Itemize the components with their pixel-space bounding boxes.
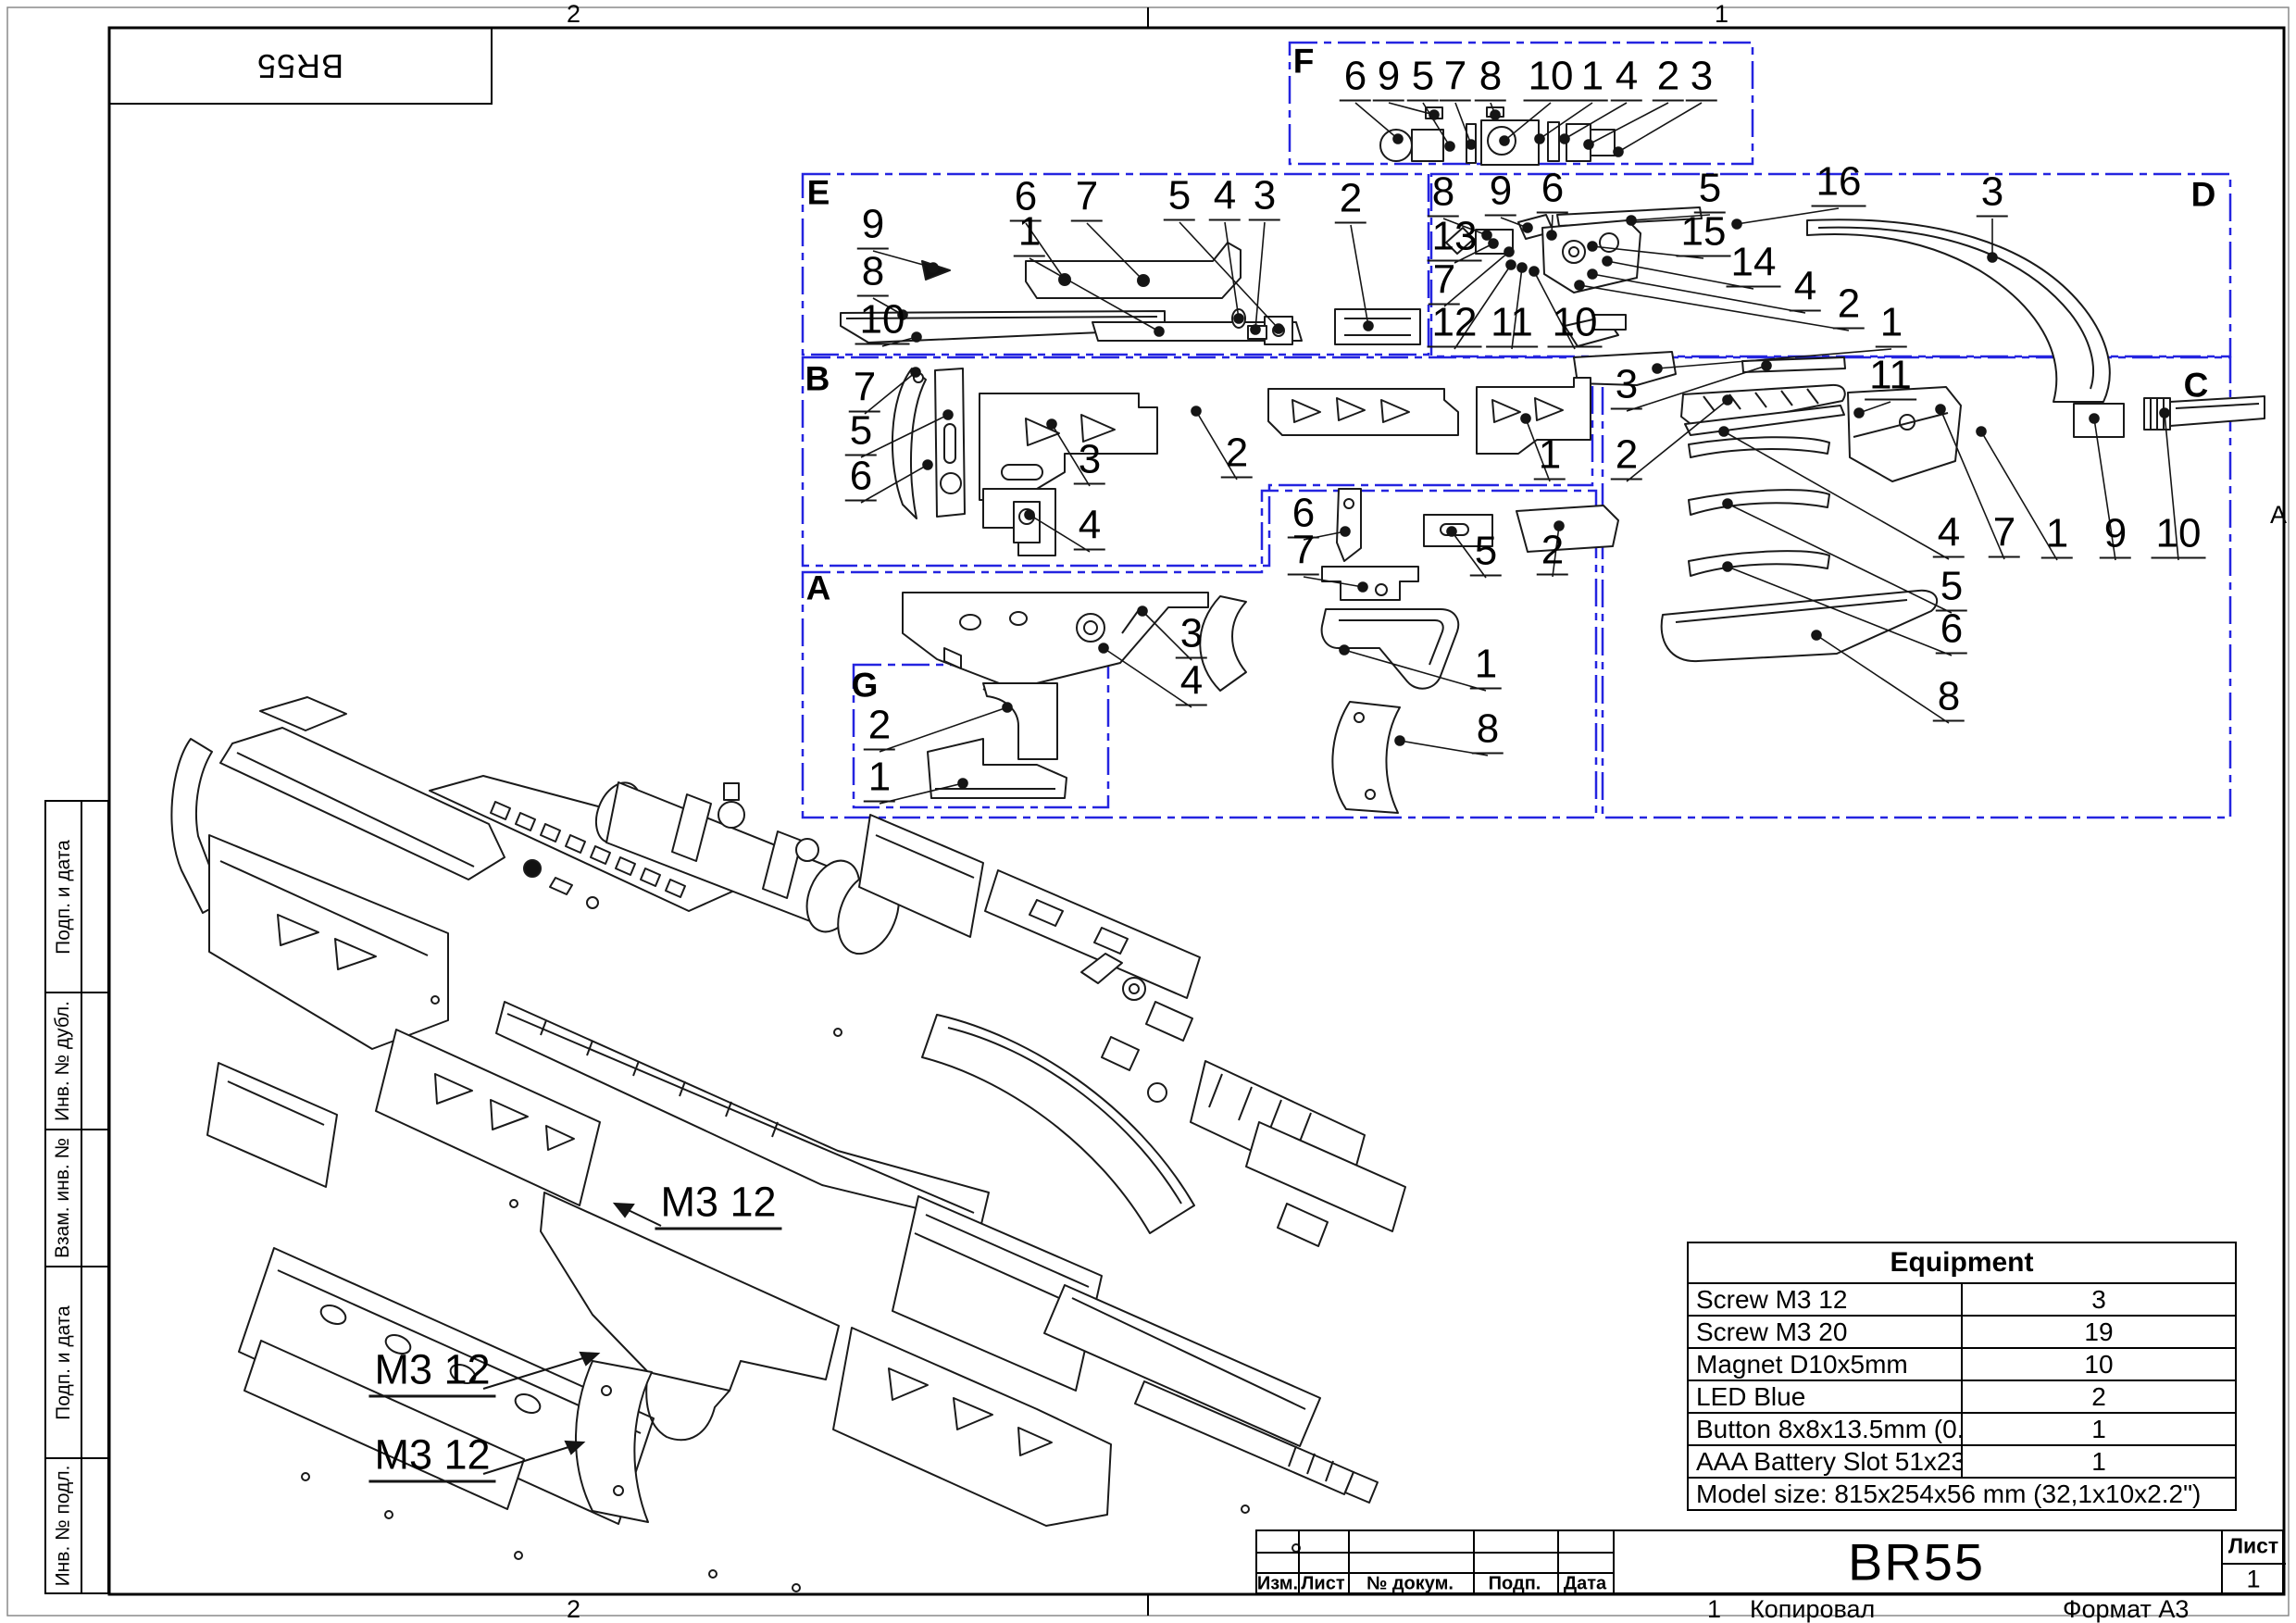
sidebar-cell: Инв. № подл. (46, 1459, 107, 1592)
equipment-row: LED Blue2 (1688, 1380, 2236, 1413)
equipment-qty: 1 (1962, 1445, 2236, 1478)
footer-sheet-number: 1 (1707, 1597, 1721, 1622)
sidebar-cell-label: Подп. и дата (53, 840, 75, 955)
top-stamp-title: BR55 (256, 46, 343, 85)
equipment-table-title: Equipment (1688, 1242, 2236, 1283)
sidebar-cell: Взам. инв. № (46, 1130, 107, 1267)
equipment-item: Magnet D10x5mm (1688, 1348, 1962, 1380)
sidebar-cell-label: Инв. № подл. (53, 1466, 75, 1587)
drawing-sheet: BR55 2 1 2 А 1 Копировал Формат А3 Подп.… (0, 0, 2296, 1623)
titleblock-col-podp: Подп. (1489, 1574, 1541, 1595)
sidebar-cell: Подп. и дата (46, 1267, 107, 1459)
sidebar-cell: Подп. и дата (46, 802, 107, 993)
equipment-row: Screw M3 123 (1688, 1283, 2236, 1316)
sidebar-cell-label: Взам. инв. № (53, 1138, 75, 1258)
equipment-qty: 10 (1962, 1348, 2236, 1380)
equipment-item: Button 8x8x13.5mm (0.3x0.3x0.5") (1688, 1413, 1962, 1445)
title-block: Изм. Лист № докум. Подп. Дата BR55 Лист … (1255, 1529, 2284, 1594)
equipment-table: Equipment Screw M3 123Screw M3 2019Magne… (1687, 1242, 2237, 1511)
top-stamp-box: BR55 (110, 28, 493, 105)
sidebar-cell-label: Инв. № дубл. (53, 1001, 75, 1121)
equipment-row: Magnet D10x5mm10 (1688, 1348, 2236, 1380)
titleblock-col-ndokum: № докум. (1366, 1574, 1454, 1595)
equipment-row: Screw M3 2019 (1688, 1316, 2236, 1348)
sidebar-stamp-column: Подп. и датаИнв. № дубл.Взам. инв. №Подп… (44, 800, 109, 1594)
equipment-item: AAA Battery Slot 51x23x11 mm (2x0.9x0.4"… (1688, 1445, 1962, 1478)
equipment-qty: 2 (1962, 1380, 2236, 1413)
equipment-qty: 19 (1962, 1316, 2236, 1348)
titleblock-col-list: Лист (1301, 1574, 1344, 1595)
titleblock-col-izm: Изм. (1257, 1574, 1298, 1595)
document-title: BR55 (1848, 1532, 1985, 1592)
equipment-row: Button 8x8x13.5mm (0.3x0.3x0.5")1 (1688, 1413, 2236, 1445)
sidebar-cell: Инв. № дубл. (46, 993, 107, 1130)
equipment-row: AAA Battery Slot 51x23x11 mm (2x0.9x0.4"… (1688, 1445, 2236, 1478)
sheet-number: 1 (2246, 1566, 2260, 1594)
footer-copied-label: Копировал (1750, 1597, 1875, 1622)
equipment-qty: 3 (1962, 1283, 2236, 1316)
titleblock-col-data: Дата (1564, 1574, 1606, 1595)
zone-number-top-left: 2 (567, 2, 580, 27)
equipment-item: Screw M3 20 (1688, 1316, 1962, 1348)
zone-number-top-right: 1 (1715, 2, 1728, 27)
equipment-item: LED Blue (1688, 1380, 1962, 1413)
equipment-qty: 1 (1962, 1413, 2236, 1445)
model-size-row: Model size: 815x254x56 mm (32,1x10x2.2") (1688, 1478, 2236, 1510)
footer-format-label: Формат А3 (2063, 1597, 2189, 1622)
zone-letter-right: А (2270, 503, 2287, 528)
equipment-item: Screw M3 12 (1688, 1283, 1962, 1316)
zone-number-bottom-left: 2 (567, 1597, 580, 1622)
sidebar-cell-label: Подп. и дата (53, 1305, 75, 1420)
sheet-label: Лист (2228, 1534, 2278, 1559)
